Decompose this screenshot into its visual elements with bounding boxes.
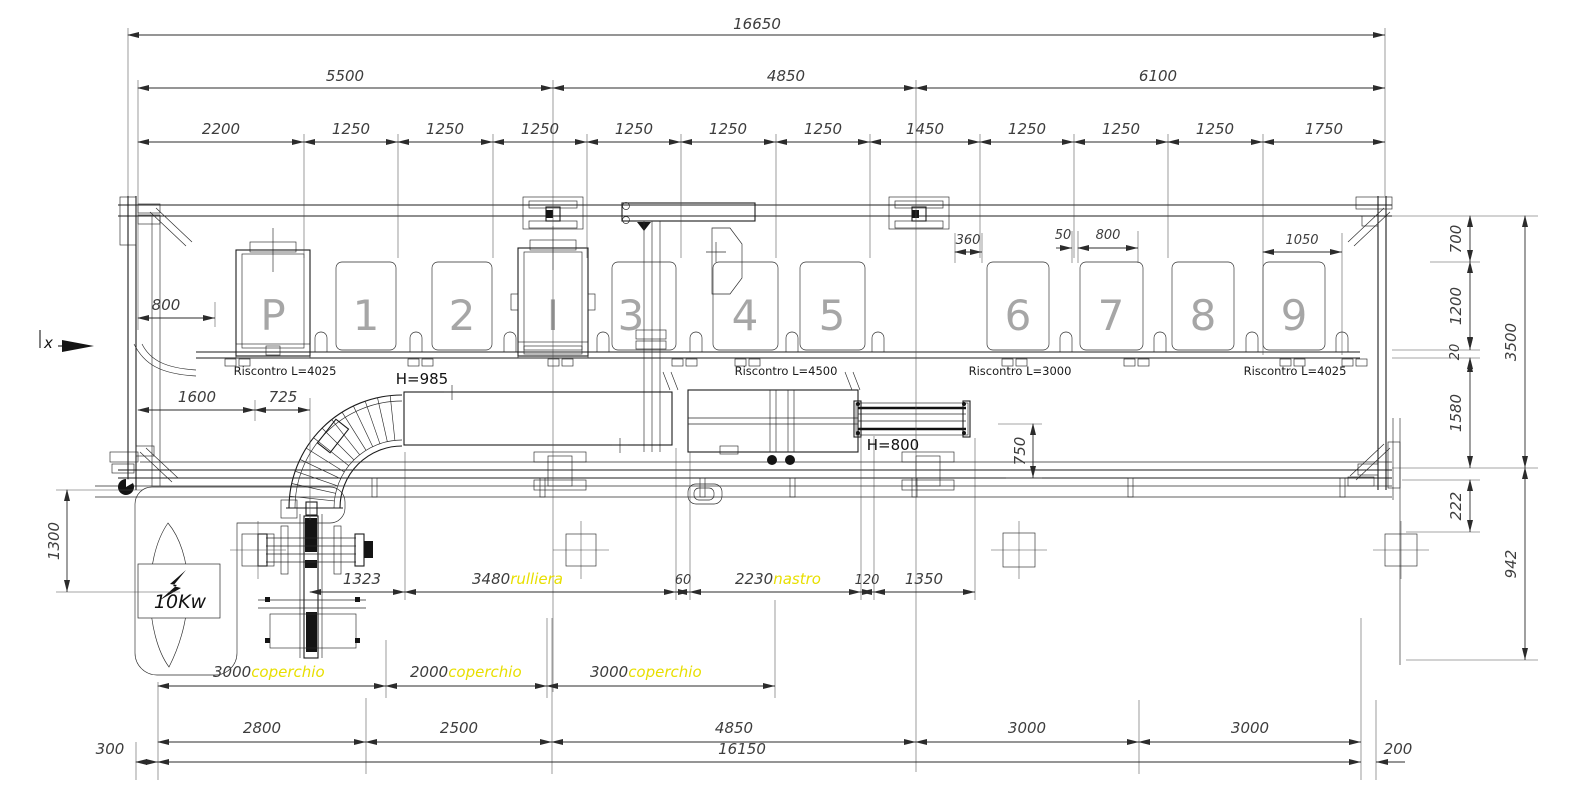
curve-height-label: H=985	[396, 370, 448, 388]
column-3	[991, 521, 1047, 579]
station-label-1: 1	[353, 291, 380, 340]
station-label-6: 6	[1005, 291, 1032, 340]
riscontro-label-4: Riscontro L=4025	[1244, 364, 1347, 378]
lower-rail-posts	[372, 478, 1345, 497]
annotation-texts: Riscontro L=4025 Riscontro L=4500 Riscon…	[234, 364, 1347, 454]
dim-16150: 16150	[718, 740, 766, 758]
note-coperchio-1: coperchio	[448, 663, 521, 681]
dim-750: 750	[1011, 437, 1029, 466]
column-1	[230, 521, 286, 579]
corner-bracket-top-right	[1348, 197, 1392, 246]
station-label-4: 4	[732, 291, 759, 340]
lower-rail-left-end	[110, 452, 138, 495]
dim-pitch-10: 1250	[1196, 120, 1234, 138]
riscontro-label-2: Riscontro L=4500	[735, 364, 838, 378]
dim-120: 120	[855, 573, 880, 588]
corner-bracket-bottom-right	[1348, 418, 1400, 665]
dim-725: 725	[269, 388, 298, 406]
dim-50: 50	[1055, 228, 1072, 243]
station-label-p: P	[260, 291, 285, 340]
dim-800-top: 800	[1096, 228, 1121, 243]
dim-2230: 2230	[735, 570, 773, 588]
dim-pitch-11: 1750	[1305, 120, 1343, 138]
dim-800-left: 800	[152, 296, 181, 314]
dim-1050: 1050	[1285, 233, 1318, 248]
station-label-7: 7	[1098, 291, 1125, 340]
dim-pitch-6: 1250	[804, 120, 842, 138]
cover-value-1: 2000	[410, 663, 448, 681]
dim-1323: 1323	[343, 570, 381, 588]
dim-700: 700	[1447, 225, 1465, 254]
overhead-trolley-2	[889, 197, 949, 229]
dim-bottom-3: 3000	[1008, 719, 1046, 737]
rail-carriage-2	[902, 452, 954, 490]
dim-overall: 16650	[733, 15, 781, 33]
dim-bay-1: 4850	[767, 67, 805, 85]
dim-222: 222	[1447, 492, 1465, 521]
dim-1580: 1580	[1447, 394, 1465, 432]
dim-3500: 3500	[1502, 323, 1520, 361]
dim-bottom-4: 3000	[1231, 719, 1269, 737]
dim-cover-1: 2000coperchio	[410, 663, 522, 681]
dim-300: 300	[96, 740, 125, 758]
dim-20: 20	[1448, 344, 1463, 361]
roller-conveyor	[281, 385, 672, 518]
dim-3480-rulliera: 3480rulliera	[472, 570, 563, 588]
building-frame	[95, 196, 1400, 665]
dim-pitch-0: 2200	[202, 120, 240, 138]
station-label-8: 8	[1190, 291, 1217, 340]
dim-1350: 1350	[905, 570, 943, 588]
dim-200: 200	[1384, 740, 1413, 758]
dim-1200: 1200	[1447, 287, 1465, 325]
axis-arrow-icon	[62, 340, 94, 352]
station-label-9: 9	[1281, 291, 1308, 340]
dim-pitch-5: 1250	[709, 120, 747, 138]
corner-bracket-bottom-left	[136, 446, 178, 482]
cover-value-0: 3000	[213, 663, 251, 681]
station-label-3: 3	[618, 291, 645, 340]
dim-2230-nastro: 2230nastro	[735, 570, 821, 588]
dim-pitch-3: 1250	[521, 120, 559, 138]
rail-carriage-1	[534, 452, 586, 490]
corner-bracket-top-left	[120, 197, 192, 246]
dim-cover-0: 3000coperchio	[213, 663, 325, 681]
dim-1300: 1300	[45, 522, 63, 560]
dim-pitch-9: 1250	[1102, 120, 1140, 138]
dim-bottom-1: 2500	[440, 719, 478, 737]
dim-cover-2: 3000coperchio	[590, 663, 702, 681]
dim-60: 60	[675, 573, 692, 588]
cover-value-2: 3000	[590, 663, 628, 681]
dim-bay-2: 6100	[1139, 67, 1177, 85]
belt-height-label: H=800	[867, 436, 919, 454]
dim-bottom-0: 2800	[243, 719, 281, 737]
dimension-texts: 16650 5500 4850 6100 2200 1250 1250 1250…	[45, 15, 1520, 758]
stations-row: P 1 2 I 3 4 5 6 7 8 9	[236, 226, 1348, 358]
dim-pitch-1: 1250	[332, 120, 370, 138]
dim-pitch-8: 1250	[1008, 120, 1046, 138]
dim-pitch-4: 1250	[615, 120, 653, 138]
axis-x-label: x	[43, 334, 53, 352]
note-coperchio-2: coperchio	[628, 663, 701, 681]
central-machine	[663, 372, 860, 504]
dim-bottom-2: 4850	[715, 719, 753, 737]
station-label-5: 5	[819, 291, 846, 340]
axis-marker: x	[40, 330, 94, 352]
dim-pitch-7: 1450	[906, 120, 944, 138]
belt-conveyor-h800	[854, 401, 970, 437]
dim-3480: 3480	[472, 570, 510, 588]
crane-plate	[712, 228, 742, 294]
station-label-2: 2	[449, 291, 476, 340]
dim-pitch-2: 1250	[426, 120, 464, 138]
note-rulliera: rulliera	[510, 570, 563, 588]
cad-layout-drawing: 10Kw	[0, 0, 1596, 806]
dim-1600: 1600	[178, 388, 216, 406]
curve-drive-unit	[317, 419, 348, 452]
riscontro-label-3: Riscontro L=3000	[969, 364, 1072, 378]
note-nastro: nastro	[773, 570, 821, 588]
dim-942: 942	[1502, 550, 1520, 579]
riscontro-label-1: Riscontro L=4025	[234, 364, 337, 378]
column-4	[1373, 521, 1429, 579]
dim-bay-0: 5500	[326, 67, 364, 85]
power-rating-label: 10Kw	[154, 591, 207, 613]
floor-columns	[230, 521, 1429, 579]
dim-360: 360	[956, 233, 981, 248]
note-coperchio-0: coperchio	[251, 663, 324, 681]
